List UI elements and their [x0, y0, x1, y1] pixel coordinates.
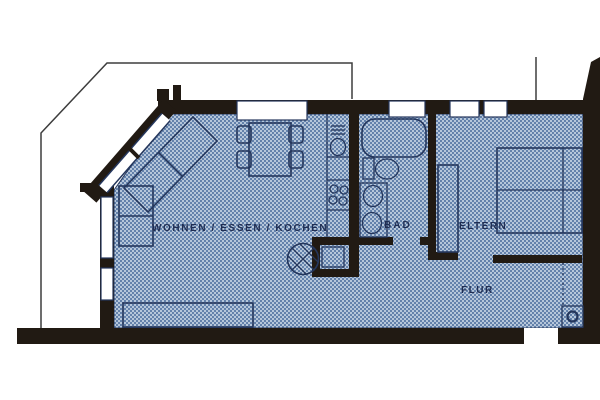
living-window	[237, 101, 307, 120]
parents-door-jamb	[428, 252, 458, 260]
bottom-wall	[17, 328, 585, 344]
pillar-stub-1	[157, 89, 169, 101]
left-window-2	[101, 268, 113, 300]
pillar-stub-2	[173, 85, 181, 101]
right-wall	[583, 57, 600, 344]
kitchen-bath-wall	[349, 114, 359, 245]
parents-window-1	[450, 101, 479, 117]
left-wall-stub	[80, 183, 100, 192]
floorplan-page: WOHNEN / ESSEN / KOCHEN BAD ELTERN FLUR	[0, 0, 600, 400]
top-wall	[158, 100, 585, 114]
parents-room-label: ELTERN	[459, 221, 507, 232]
floorplan-canvas: WOHNEN / ESSEN / KOCHEN BAD ELTERN FLUR	[0, 0, 600, 400]
bath-parents-wall	[428, 114, 436, 252]
hall-label: FLUR	[461, 285, 494, 296]
bath-door-jamb	[420, 237, 428, 245]
bath-window	[389, 101, 425, 117]
entrance-door-opening	[524, 328, 558, 344]
parents-window-2	[484, 101, 507, 117]
bath-label: BAD	[384, 220, 412, 231]
left-window-1	[101, 197, 113, 258]
living-room-label: WOHNEN / ESSEN / KOCHEN	[152, 223, 328, 234]
parents-hall-wall	[493, 255, 582, 263]
apartment-floor	[114, 114, 583, 328]
duct-wall-right	[349, 237, 359, 277]
